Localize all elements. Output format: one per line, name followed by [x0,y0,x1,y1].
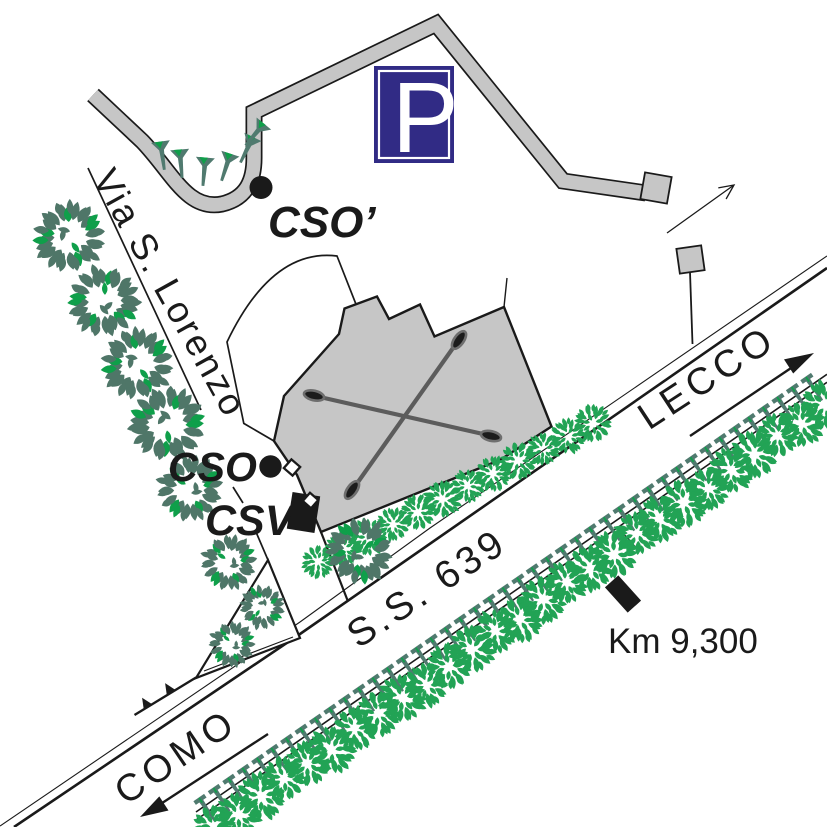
svg-text:CSO’: CSO’ [268,198,376,247]
svg-text:P: P [392,62,459,174]
svg-text:CSO: CSO [168,444,257,490]
svg-text:Km 9,300: Km 9,300 [608,622,758,661]
svg-text:CSV: CSV [205,497,297,545]
